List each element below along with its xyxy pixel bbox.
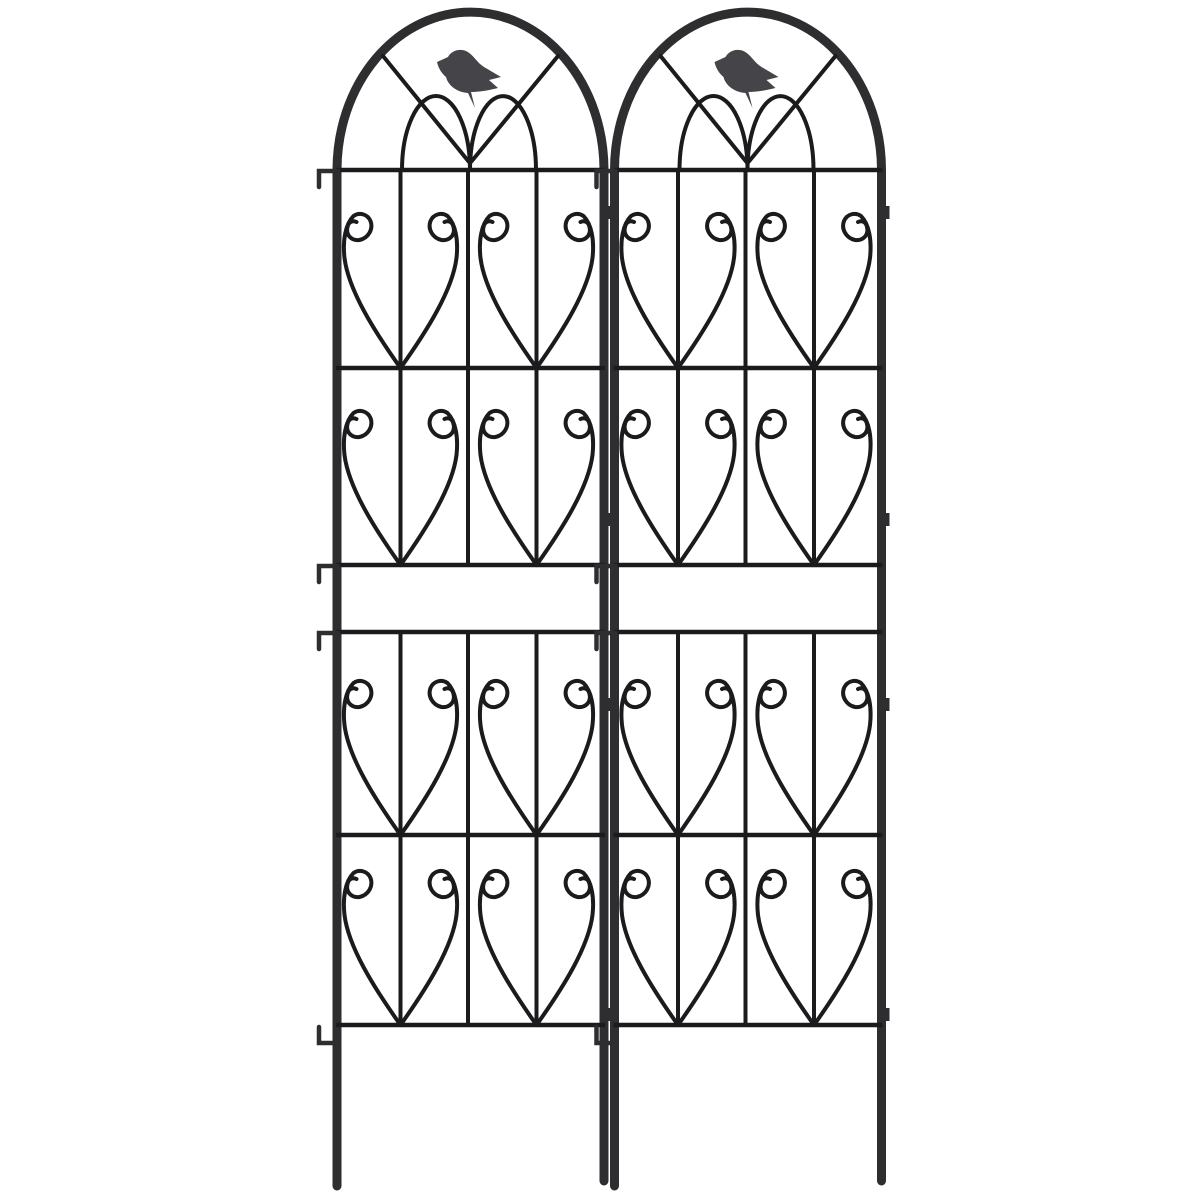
trellis-panel-left <box>319 12 612 1186</box>
trellis-panel-right <box>597 12 890 1186</box>
product-photo: Two identical black wrought-iron style g… <box>0 0 1200 1200</box>
trellis-illustration <box>0 0 1200 1200</box>
